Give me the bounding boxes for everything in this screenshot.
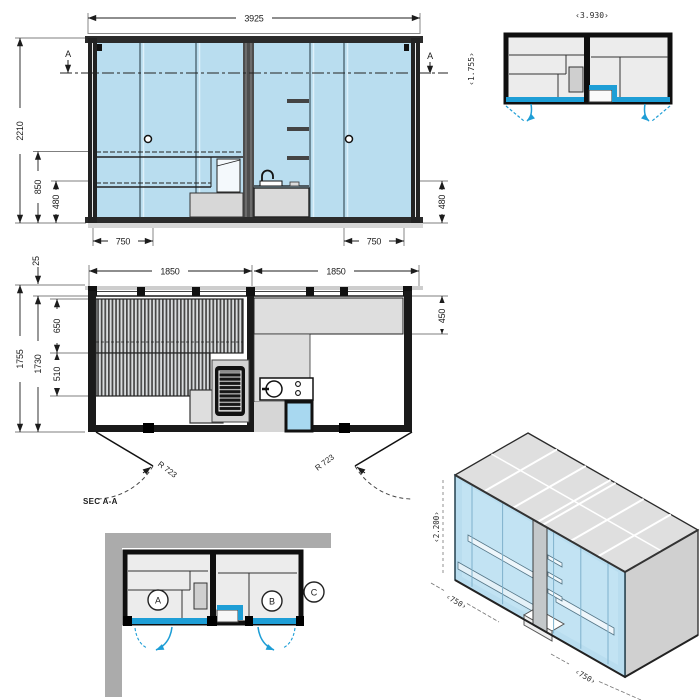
technical-drawing-sheet: 3925 2210 850 480 480 750 750 A A [0, 0, 700, 700]
section-label: SEC A-A [83, 497, 118, 506]
overview-dim-width: ‹3.930› [575, 11, 609, 20]
placement-door-swings [135, 627, 295, 650]
sink-elevation [260, 181, 282, 186]
dim-bench-upper: 650 [52, 319, 62, 334]
dim-seat-left: 480 [51, 195, 61, 210]
door-jamb-left [143, 423, 154, 433]
shower-bench [254, 298, 403, 334]
plan-wall-left [88, 291, 96, 432]
door-handle-left [145, 136, 152, 143]
building-wall-top [105, 533, 331, 548]
dim-elevation-width: 3925 [244, 14, 263, 24]
plan-wall-right [404, 291, 412, 432]
dim-bench-right: 450 [437, 309, 447, 324]
dim-room-right-width: 1850 [326, 267, 345, 277]
room-b-label: B [269, 597, 275, 607]
elevation-unit [60, 34, 448, 229]
plan-wall-front [88, 425, 412, 432]
front-elevation-view: 3925 2210 850 480 480 750 750 A A [13, 12, 449, 247]
dim-wall-thickness: 25 [31, 256, 41, 266]
shelf-3 [287, 156, 309, 160]
overview-plan-view: ‹3.930› ‹1.755› [467, 11, 670, 121]
shower-tray [286, 402, 312, 431]
dim-door-left: 750 [116, 237, 131, 247]
dim-bench-height: 850 [33, 180, 43, 195]
room-a-label: A [155, 596, 161, 606]
placement-plan-view: A B C [105, 533, 331, 697]
vanity-cabinet [254, 188, 309, 217]
drawing-canvas: 3925 2210 850 480 480 750 750 A A [0, 0, 700, 700]
sauna-heater-elevation [217, 159, 240, 192]
dim-depth-inner: 1730 [33, 354, 43, 373]
placement-step [217, 610, 238, 622]
section-marker-a-left: A [65, 49, 71, 59]
room-c-label: C [311, 588, 318, 598]
building-wall-left [105, 533, 122, 697]
roof-band [85, 36, 423, 43]
isometric-view: ‹2.200› ‹750› ‹750› [431, 433, 698, 700]
sauna-bench-upper [96, 299, 243, 353]
dim-bench-lower: 510 [52, 367, 62, 382]
floor-plan-view: 1850 1850 25 1755 1730 650 510 450 [13, 256, 449, 506]
door-jamb-right [339, 423, 350, 433]
floor-shadow [88, 223, 423, 228]
dim-room-left-width: 1850 [160, 267, 179, 277]
door-radius-right-label: R 723 [313, 452, 336, 472]
shelf-1 [287, 99, 309, 103]
plan-unit [85, 286, 423, 499]
dim-depth-outer: 1755 [15, 349, 25, 368]
door-radius-left-label: R 723 [156, 460, 179, 480]
iso-partition [533, 520, 547, 633]
overview-dim-depth: ‹1.755› [467, 52, 476, 86]
iso-dim-door-left: ‹750› [444, 592, 468, 611]
plan-door-swings [96, 432, 412, 499]
door-handle-right [346, 136, 353, 143]
shelf-2 [287, 127, 309, 131]
partition-post [243, 43, 254, 217]
iso-dim-height: ‹2.200› [432, 511, 441, 543]
base-band [85, 217, 423, 223]
iso-dim-door-right: ‹750› [573, 667, 597, 686]
dim-door-right: 750 [367, 237, 382, 247]
overview-step [589, 90, 612, 102]
section-marker-a-right: A [427, 51, 433, 61]
overview-door-swings [506, 104, 670, 121]
dim-elevation-height: 2210 [15, 121, 25, 140]
dim-seat-right: 480 [437, 195, 447, 210]
